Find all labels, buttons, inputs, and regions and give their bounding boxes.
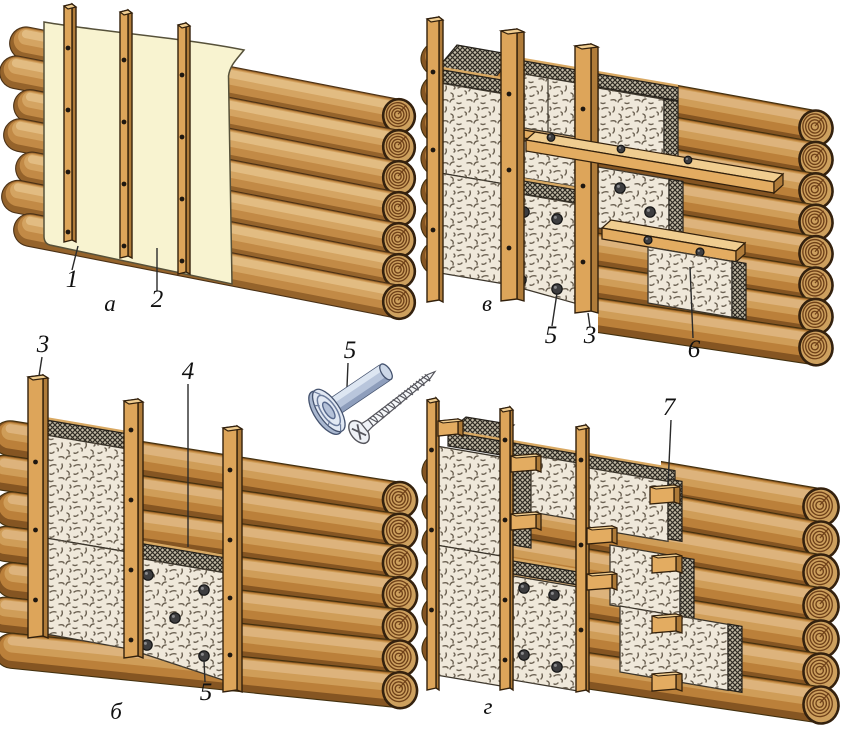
svg-text:3: 3 (36, 331, 50, 358)
svg-text:5: 5 (200, 679, 213, 706)
svg-text:4: 4 (182, 358, 195, 385)
svg-text:5: 5 (545, 322, 558, 349)
svg-text:1: 1 (66, 266, 79, 293)
svg-text:г: г (484, 694, 493, 719)
svg-text:2: 2 (151, 286, 164, 313)
svg-text:7: 7 (663, 394, 677, 421)
svg-text:б: б (110, 699, 123, 724)
svg-text:а: а (104, 291, 116, 316)
svg-text:3: 3 (583, 322, 597, 349)
svg-text:в: в (482, 291, 492, 316)
svg-text:6: 6 (688, 336, 701, 363)
svg-text:5: 5 (344, 337, 357, 364)
